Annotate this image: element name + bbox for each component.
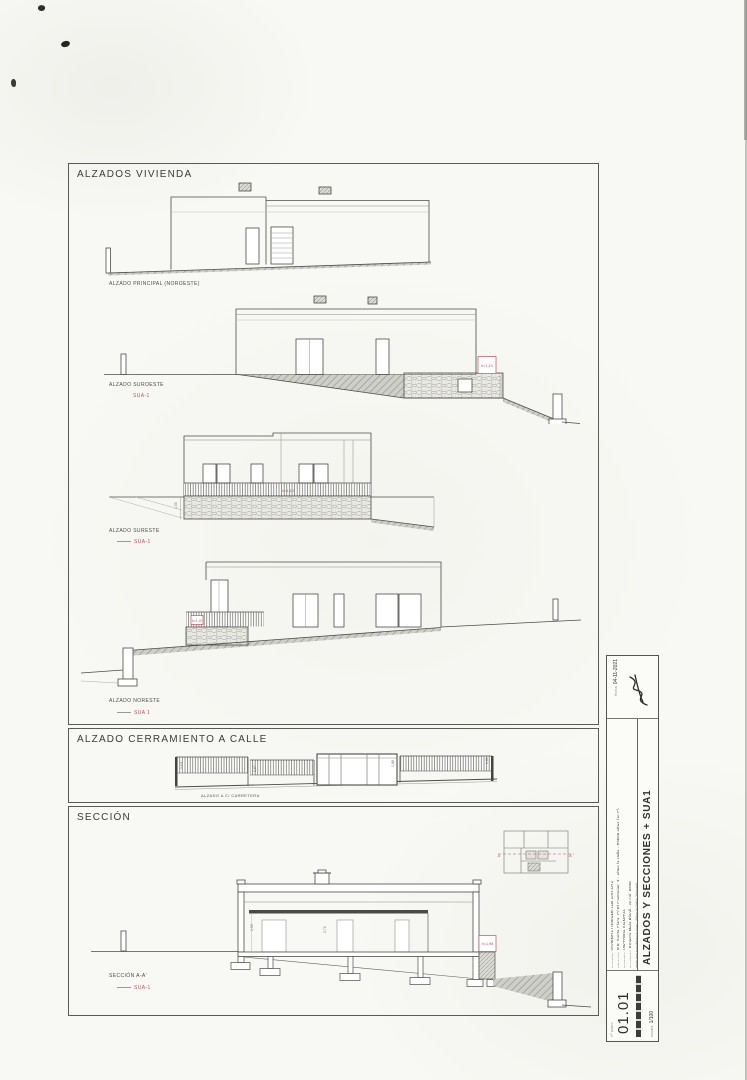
elevation-suroeste-drawing: h=1,10 [96,291,581,424]
elevation-principal-drawing [96,176,446,280]
scan-speck [37,4,46,12]
sua-marker-text: h=1,10 [282,489,294,493]
signature [623,672,653,708]
sheet-number: 01.01 [615,991,632,1034]
scanned-drawing-sheet: ALZADOS VIVIENDA ALZADO PRINCIPAL (NOROE… [0,0,747,1080]
dim-text: 0,67 [253,765,257,772]
titleblock-date-cell: fecha04-11-2021 [607,656,658,719]
frame-seccion: SECCIÓN A A' [68,806,599,1016]
titleblock-rotated-content: nº plano 01.01 escala1/100 proyectoVIVIE… [607,656,658,1041]
scale-line: escala1/100 [649,1011,655,1037]
fence-elevation-drawing: 1,13 0,67 1,88 1,01 [171,749,501,793]
frame-cerramiento: ALZADO CERRAMIENTO A CALLE [68,728,599,803]
sua-marker-text: h=1,98 [482,942,494,946]
leader-line [117,712,131,713]
date-value: 04-11-2021 [613,659,619,684]
scan-speck [11,79,16,87]
section-mark-a: A [498,853,501,858]
elevation-noreste-drawing: h=1,10 [81,557,586,697]
leader-line [117,541,131,542]
titleblock-number-cell: nº plano 01.01 escala1/100 [607,970,658,1041]
section-code: SUA-1 [117,985,151,991]
dim-text: 2,70 [323,926,327,933]
code-text: SUA-1 [134,985,151,991]
elevation-suroeste-code: SUA-1 [133,393,150,399]
frame-alzados-vivienda: ALZADOS VIVIENDA ALZADO PRINCIPAL (NOROE… [68,163,599,725]
dim-text: 1,88 [391,760,395,767]
frame-cerramiento-title: ALZADO CERRAMIENTO A CALLE [77,734,268,745]
sua-marker-text: h=1,10 [481,364,493,368]
section-mark-a-prime: A' [569,853,573,858]
elevation-noreste-code: SUA 1 [117,710,150,716]
elevation-sureste-code: SUA-1 [117,539,151,545]
sua-marker-text: h=1,10 [192,619,202,623]
scan-speck [60,40,70,48]
elevation-principal-label: ALZADO PRINCIPAL (NOROESTE) [109,281,200,287]
dim-text: 1,13 [179,762,183,769]
dim-text: 1,50 [174,502,178,509]
elevation-sureste-label: ALZADO SURESTE [109,528,160,534]
dim-text: 1,01 [485,757,489,764]
code-text: SUA 1 [134,710,150,716]
elevation-sureste-drawing: 1,50 h=1,10 [96,426,581,554]
fence-elevation-label: ALZADO A C/ CARRETERA [201,793,260,798]
sheet-number-label: nº plano [610,1022,614,1037]
elevation-noreste-label: ALZADO NORESTE [109,698,160,704]
date-line: fecha04-11-2021 [613,659,619,696]
graphic-scale-bar [636,975,641,1037]
elevation-suroeste-label: ALZADO SUROESTE [109,382,164,388]
code-text: SUA-1 [134,539,151,545]
date-label: fecha [614,686,618,696]
scale-label: escala [650,1025,654,1037]
dim-text: 2,50 [250,924,254,931]
section-label: SECCIÓN A-A' [109,973,147,979]
titleblock: nº plano 01.01 escala1/100 proyectoVIVIE… [606,655,659,1042]
scale-value: 1/100 [649,1011,655,1024]
titleblock-fields: proyectoVIVIENDA UNIFAMILIAR AISLADA sit… [607,718,658,971]
leader-line [117,987,131,988]
section-drawing: h=1,98 2,50 2,70 [81,869,591,1009]
frame-seccion-title: SECCIÓN [77,812,131,823]
sheet-title: ALZADOS Y SECCIONES + SUA1 [637,719,658,971]
